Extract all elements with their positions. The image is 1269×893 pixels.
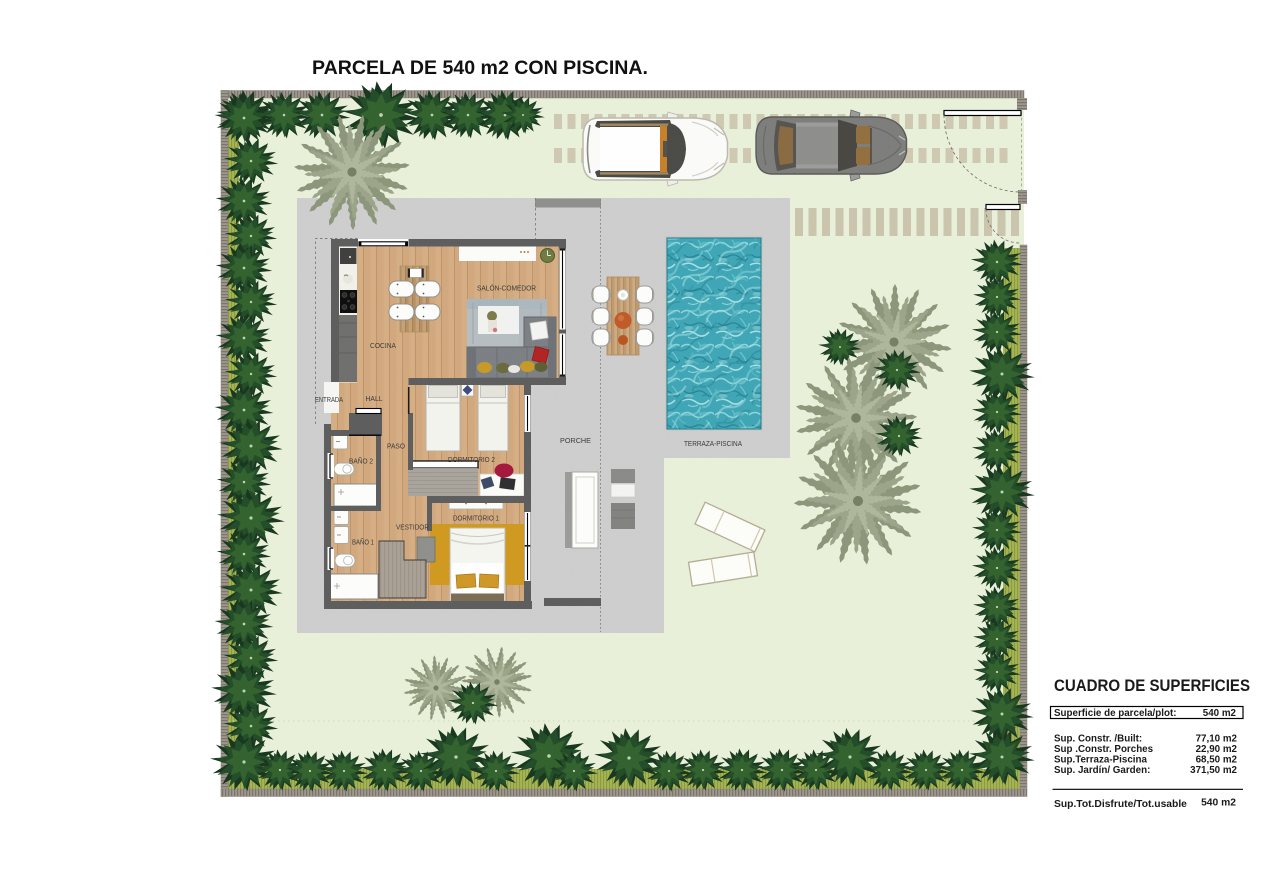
svg-text:PARCELA DE 540 m2 CON PISCINA.: PARCELA DE 540 m2 CON PISCINA.: [312, 57, 648, 79]
svg-text:77,10 m2: 77,10 m2: [1196, 734, 1238, 745]
svg-text:Sup.Terraza-Piscina: Sup.Terraza-Piscina: [1054, 755, 1147, 766]
svg-text:68,50 m2: 68,50 m2: [1196, 755, 1238, 766]
svg-text:Superficie de parcela/plot:: Superficie de parcela/plot:: [1054, 708, 1177, 719]
svg-text:22,90 m2: 22,90 m2: [1196, 744, 1238, 755]
svg-text:371,50 m2: 371,50 m2: [1190, 765, 1237, 776]
svg-text:Sup.Tot.Disfrute/Tot.usable: Sup.Tot.Disfrute/Tot.usable: [1054, 799, 1187, 810]
svg-text:540 m2: 540 m2: [1201, 798, 1236, 809]
svg-text:Sup .Constr. Porches: Sup .Constr. Porches: [1054, 744, 1154, 755]
svg-text:Sup. Constr. /Built:: Sup. Constr. /Built:: [1054, 734, 1142, 745]
svg-text:540 m2: 540 m2: [1203, 708, 1237, 719]
svg-text:CUADRO DE SUPERFICIES: CUADRO DE SUPERFICIES: [1054, 677, 1250, 695]
svg-text:Sup. Jardín/ Garden:: Sup. Jardín/ Garden:: [1054, 765, 1150, 776]
